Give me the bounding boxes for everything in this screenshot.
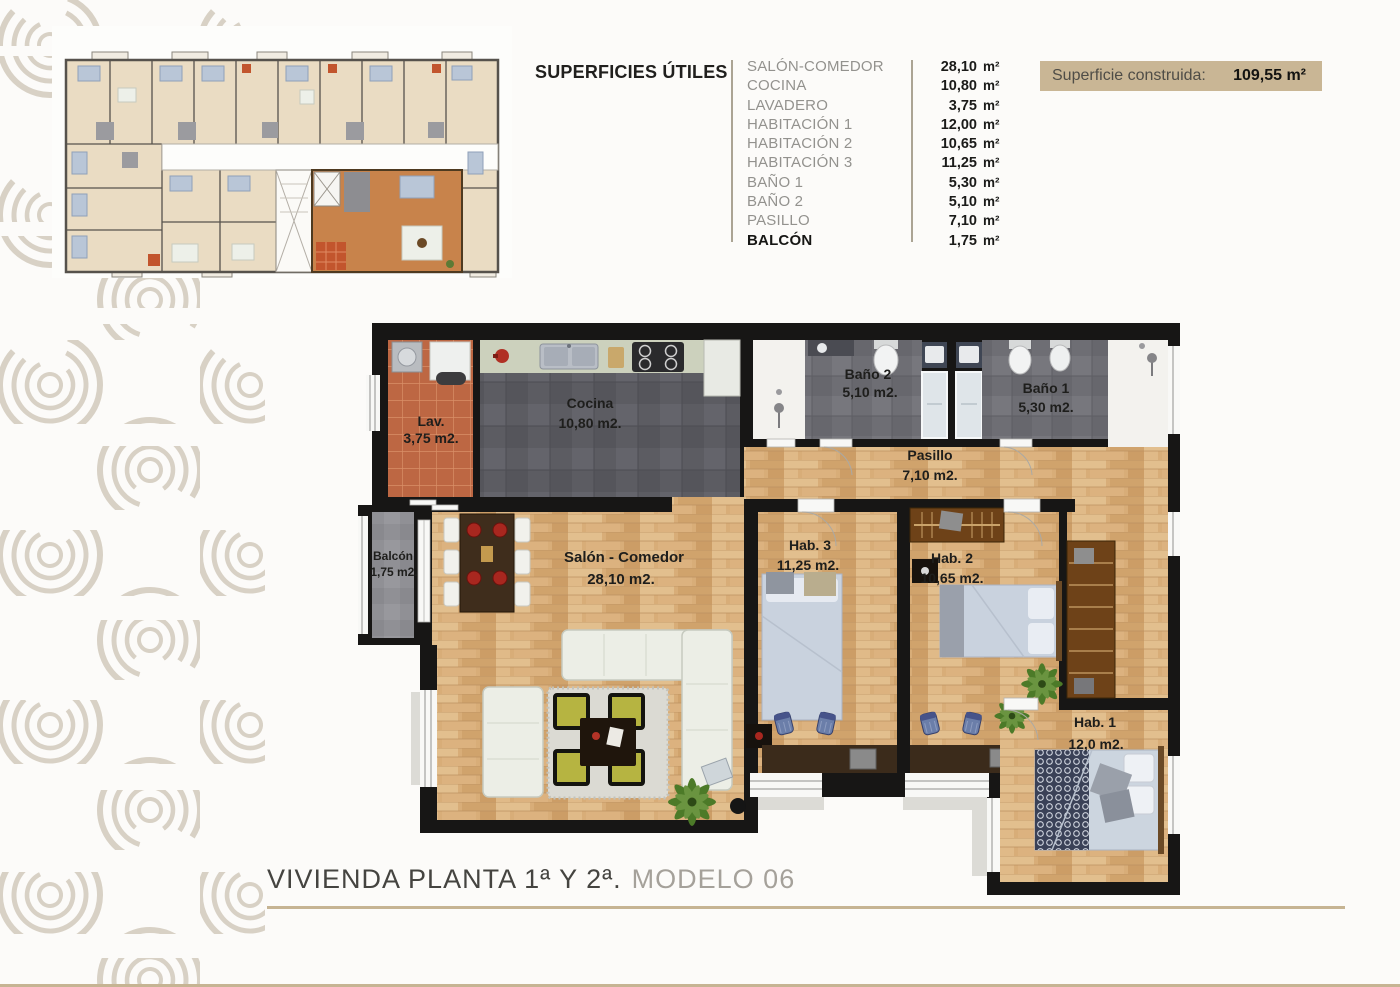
hab2-area: 10,65 m2. bbox=[920, 570, 983, 586]
wardrobe bbox=[1067, 541, 1115, 698]
room-hab3: Hab. 3 11,25 m2. bbox=[746, 512, 897, 773]
surface-value: 5,30 bbox=[923, 175, 977, 191]
surface-label: HABITACIÓN 3 bbox=[747, 154, 923, 171]
dining-table bbox=[444, 514, 530, 612]
surface-label: BALCÓN bbox=[747, 232, 923, 249]
hab3-name: Hab. 3 bbox=[789, 537, 831, 553]
bano1-area: 5,30 m2. bbox=[1018, 399, 1073, 415]
toilet-icon bbox=[1009, 340, 1031, 374]
bed-icon bbox=[762, 572, 842, 720]
pasillo-area: 7,10 m2. bbox=[902, 467, 957, 483]
surfaces-table-rows: SALÓN-COMEDOR28,10m² COCINA10,80m² LAVAD… bbox=[747, 58, 1013, 251]
plant-icon bbox=[668, 778, 716, 826]
surface-unit: m² bbox=[977, 117, 1013, 132]
pasillo-name: Pasillo bbox=[907, 447, 952, 463]
footer-rule bbox=[267, 906, 1345, 909]
room-salon: Salón - Comedor 28,10 m2. bbox=[432, 497, 746, 826]
surface-row: BAÑO 25,10m² bbox=[747, 193, 1013, 212]
built-area-value: 109,55 m² bbox=[1233, 67, 1306, 85]
room-bano1: Baño 1 5,30 m2. bbox=[982, 340, 1108, 439]
bano1-name: Baño 1 bbox=[1023, 380, 1070, 396]
table-divider-left bbox=[731, 60, 733, 242]
surface-unit: m² bbox=[977, 98, 1013, 113]
hab1-name: Hab. 1 bbox=[1074, 714, 1116, 730]
bano2-name: Baño 2 bbox=[845, 366, 892, 382]
surface-row: LAVADERO3,75m² bbox=[747, 97, 1013, 116]
surface-label: SALÓN-COMEDOR bbox=[747, 58, 923, 75]
surface-unit: m² bbox=[977, 59, 1013, 74]
cocina-name: Cocina bbox=[567, 395, 614, 411]
surface-row: PASILLO7,10m² bbox=[747, 212, 1013, 231]
surface-row: BAÑO 15,30m² bbox=[747, 174, 1013, 193]
apartment-floor-plan: Lav. 3,75 m2. Cocina 10,80 m2. bbox=[352, 316, 1188, 902]
balcon-name: Balcón bbox=[373, 549, 413, 563]
built-area-badge: Superficie construida: 109,55 m² bbox=[1040, 61, 1322, 91]
balcon-area: 1,75 m2. bbox=[370, 565, 417, 579]
surfaces-table-title: SUPERFICIES ÚTILES bbox=[535, 62, 728, 83]
surface-value: 10,65 bbox=[923, 136, 977, 152]
surface-label: COCINA bbox=[747, 77, 923, 94]
surface-row: HABITACIÓN 112,00m² bbox=[747, 116, 1013, 135]
building-overview-plan bbox=[52, 26, 512, 278]
room-lavadero: Lav. 3,75 m2. bbox=[388, 340, 473, 497]
lavadero-area: 3,75 m2. bbox=[403, 430, 458, 446]
bed-icon bbox=[940, 581, 1062, 661]
room-hab1: Hab. 1 12,0 m2. bbox=[994, 698, 1168, 882]
surface-label: HABITACIÓN 2 bbox=[747, 135, 923, 152]
room-balcon: Balcón 1,75 m2. bbox=[370, 512, 430, 638]
salon-area: 28,10 m2. bbox=[587, 571, 655, 588]
surface-value: 28,10 bbox=[923, 59, 977, 75]
surface-value: 1,75 bbox=[923, 233, 977, 249]
surface-unit: m² bbox=[977, 194, 1013, 209]
surface-value: 3,75 bbox=[923, 98, 977, 114]
surface-unit: m² bbox=[977, 136, 1013, 151]
surface-unit: m² bbox=[977, 233, 1013, 248]
plan-title-main: VIVIENDA PLANTA 1ª Y 2ª. bbox=[267, 864, 622, 894]
salon-name: Salón - Comedor bbox=[564, 549, 684, 566]
surface-unit: m² bbox=[977, 155, 1013, 170]
bed-icon bbox=[1035, 746, 1164, 854]
hab2-name: Hab. 2 bbox=[931, 550, 973, 566]
surface-label: BAÑO 2 bbox=[747, 193, 923, 210]
surface-value: 10,80 bbox=[923, 78, 977, 94]
surface-row: BALCÓN1,75m² bbox=[747, 232, 1013, 251]
room-cocina: Cocina 10,80 m2. bbox=[480, 340, 740, 497]
surface-unit: m² bbox=[977, 213, 1013, 228]
overview-corridor bbox=[162, 144, 498, 170]
cocina-area: 10,80 m2. bbox=[558, 415, 621, 431]
lavadero-name: Lav. bbox=[418, 413, 445, 429]
hab3-area: 11,25 m2. bbox=[777, 557, 839, 573]
bano2-shower-zone bbox=[753, 340, 805, 439]
room-bano2: Baño 2 5,10 m2. bbox=[805, 340, 922, 439]
surface-label: LAVADERO bbox=[747, 97, 923, 114]
overview-staircase bbox=[276, 170, 312, 272]
surface-label: PASILLO bbox=[747, 212, 923, 229]
overview-highlighted-unit bbox=[312, 170, 462, 272]
surface-row: HABITACIÓN 311,25m² bbox=[747, 154, 1013, 173]
built-area-label: Superficie construida: bbox=[1052, 67, 1206, 85]
surface-unit: m² bbox=[977, 78, 1013, 93]
plan-title: VIVIENDA PLANTA 1ª Y 2ª.MODELO 06 bbox=[267, 864, 795, 895]
surface-row: HABITACIÓN 210,65m² bbox=[747, 135, 1013, 154]
plan-title-model: MODELO 06 bbox=[632, 864, 796, 894]
surface-row: COCINA10,80m² bbox=[747, 77, 1013, 96]
surface-label: HABITACIÓN 1 bbox=[747, 116, 923, 133]
surface-value: 5,10 bbox=[923, 194, 977, 210]
bowl-icon bbox=[730, 798, 746, 814]
bano2-area: 5,10 m2. bbox=[842, 384, 897, 400]
surface-label: BAÑO 1 bbox=[747, 174, 923, 191]
surface-value: 12,00 bbox=[923, 117, 977, 133]
flyer-page: SUPERFICIES ÚTILES SALÓN-COMEDOR28,10m² … bbox=[0, 0, 1400, 987]
rug-and-coffee-table bbox=[548, 688, 668, 798]
wardrobe bbox=[910, 508, 1004, 542]
surface-value: 7,10 bbox=[923, 213, 977, 229]
hab1-corridor bbox=[1067, 512, 1168, 698]
bidet-icon bbox=[1050, 340, 1070, 371]
surface-value: 11,25 bbox=[923, 155, 977, 171]
surface-unit: m² bbox=[977, 175, 1013, 190]
hab1-area: 12,0 m2. bbox=[1068, 736, 1123, 752]
surface-row: SALÓN-COMEDOR28,10m² bbox=[747, 58, 1013, 77]
